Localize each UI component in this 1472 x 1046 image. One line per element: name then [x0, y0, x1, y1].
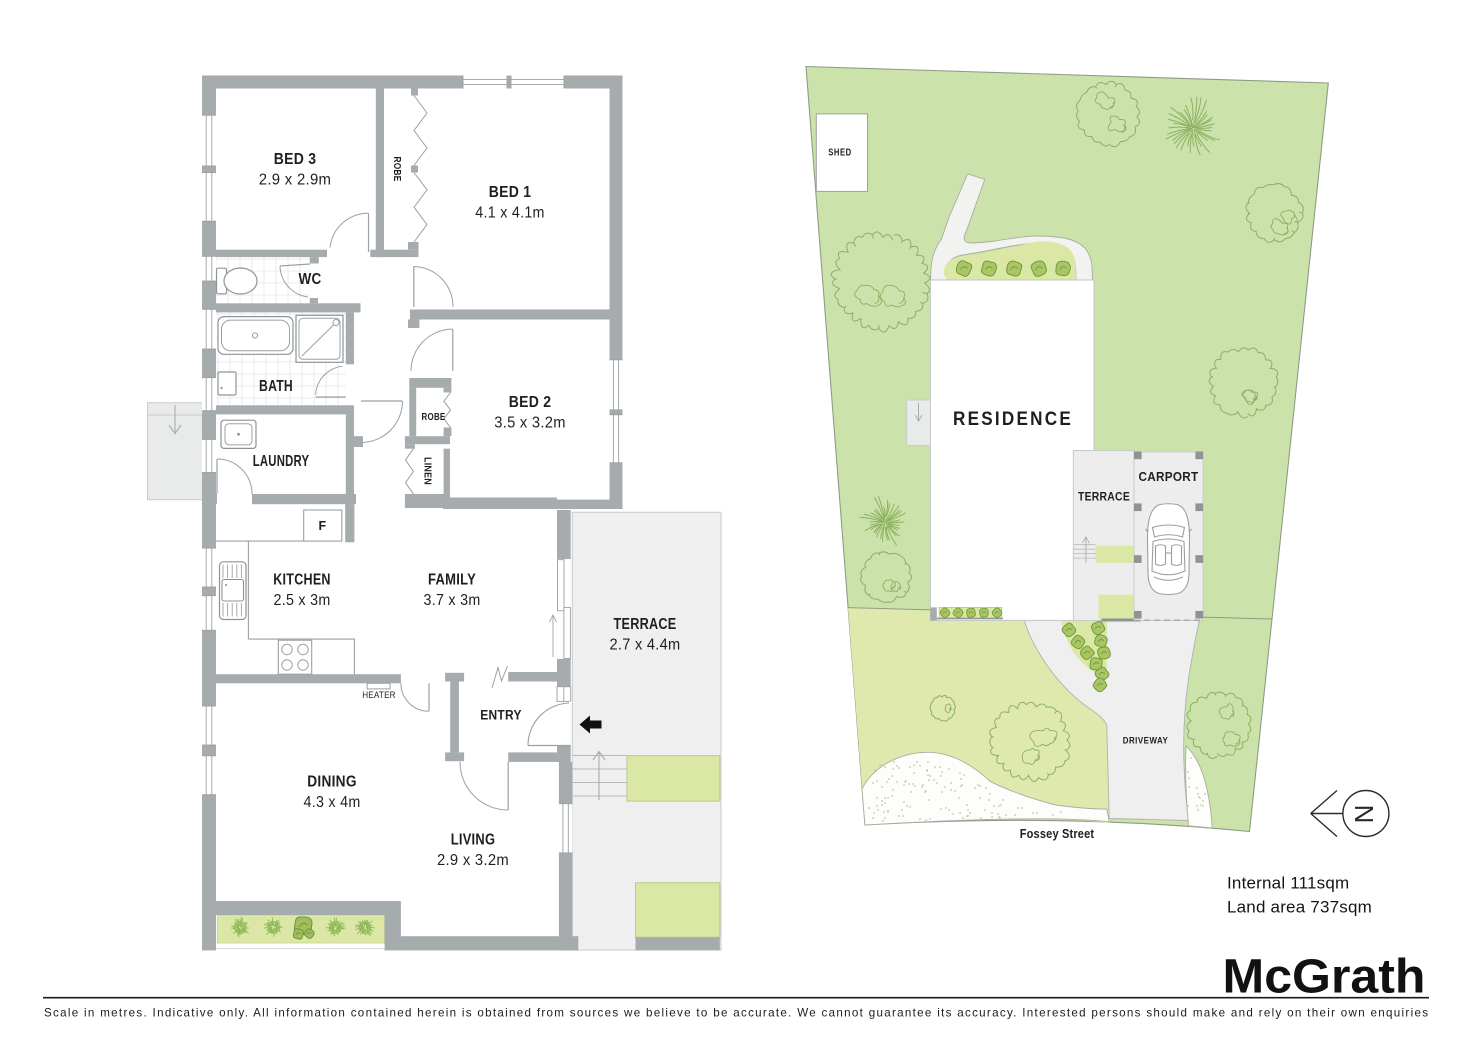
svg-text:BATH: BATH: [259, 378, 293, 395]
svg-text:Internal 111sqm: Internal 111sqm: [1227, 873, 1349, 892]
svg-text:DINING: DINING: [307, 774, 357, 791]
svg-text:WC: WC: [299, 271, 322, 288]
svg-text:3.7 x 3m: 3.7 x 3m: [424, 592, 481, 609]
svg-text:McGrath: McGrath: [1223, 951, 1426, 1004]
svg-text:KITCHEN: KITCHEN: [273, 572, 331, 589]
svg-text:DRIVEWAY: DRIVEWAY: [1123, 736, 1169, 747]
svg-text:ROBE: ROBE: [391, 157, 403, 182]
svg-text:BED 1: BED 1: [489, 184, 532, 201]
svg-text:2.5 x 3m: 2.5 x 3m: [274, 592, 331, 609]
svg-text:LINEN: LINEN: [422, 457, 434, 485]
svg-text:Land area 737sqm: Land area 737sqm: [1227, 897, 1372, 916]
svg-text:SHED: SHED: [828, 146, 852, 158]
svg-text:2.7 x 4.4m: 2.7 x 4.4m: [610, 637, 681, 654]
svg-text:N: N: [1349, 805, 1379, 824]
svg-text:BED 2: BED 2: [509, 394, 552, 411]
svg-text:HEATER: HEATER: [362, 690, 396, 700]
svg-text:TERRACE: TERRACE: [614, 616, 677, 633]
svg-text:2.9 x 2.9m: 2.9 x 2.9m: [259, 172, 332, 189]
svg-text:Scale in metres. Indicative on: Scale in metres. Indicative only. All in…: [44, 1007, 1428, 1020]
svg-text:CARPORT: CARPORT: [1139, 470, 1199, 484]
svg-text:4.1 x 4.1m: 4.1 x 4.1m: [475, 205, 545, 222]
svg-text:3.5 x 3.2m: 3.5 x 3.2m: [494, 415, 566, 432]
svg-text:F: F: [319, 519, 327, 533]
svg-text:4.3 x 4m: 4.3 x 4m: [304, 794, 361, 811]
svg-text:LAUNDRY: LAUNDRY: [253, 453, 310, 470]
svg-text:LIVING: LIVING: [451, 832, 496, 849]
svg-text:2.9 x 3.2m: 2.9 x 3.2m: [437, 852, 509, 869]
svg-text:TERRACE: TERRACE: [1078, 492, 1130, 504]
svg-text:RESIDENCE: RESIDENCE: [953, 409, 1073, 430]
svg-text:ENTRY: ENTRY: [480, 708, 522, 723]
svg-text:BED 3: BED 3: [274, 151, 317, 168]
svg-text:ROBE: ROBE: [422, 411, 446, 423]
svg-text:Fossey Street: Fossey Street: [1020, 826, 1095, 841]
svg-text:FAMILY: FAMILY: [428, 572, 476, 589]
